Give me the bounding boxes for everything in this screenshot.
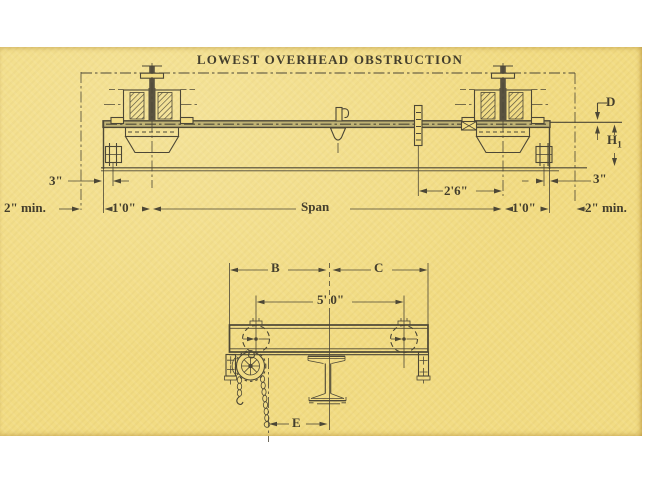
dim-label-2ft6: 2'6" bbox=[444, 184, 468, 198]
dim-label-1ft0-right: 1'0" bbox=[512, 201, 536, 215]
dim-label-2in-min-right: 2" min. bbox=[585, 201, 627, 215]
dim-label-3in-left: 3" bbox=[49, 174, 63, 188]
end-view-beam bbox=[230, 263, 429, 430]
dim-label-h1: H1 bbox=[607, 133, 622, 153]
turnbuckle bbox=[462, 122, 477, 131]
runway-ibeam-section bbox=[308, 356, 346, 404]
dim-label-1ft0-left: 1'0" bbox=[112, 201, 136, 215]
scanned-page: { "title": "LOWEST OVERHEAD OBSTRUCTION"… bbox=[0, 0, 650, 490]
dim-label-c: C bbox=[374, 261, 383, 275]
hook-fitting bbox=[331, 108, 349, 154]
dim-label-2in-min-left: 2" min. bbox=[4, 201, 46, 215]
splice-plate bbox=[415, 106, 423, 197]
dim-label-3in-right: 3" bbox=[593, 172, 607, 186]
figure-title: LOWEST OVERHEAD OBSTRUCTION bbox=[197, 53, 463, 67]
hand-chain bbox=[237, 358, 270, 442]
trolley-wheel-left bbox=[243, 296, 271, 353]
crane-diagram-linework bbox=[0, 0, 650, 490]
end-stop-right bbox=[417, 352, 430, 384]
dim-label-e: E bbox=[292, 416, 301, 430]
dim-label-h1-base: H bbox=[607, 132, 617, 147]
dim-label-h1-subscript: 1 bbox=[617, 141, 622, 151]
trolley-wheel-right bbox=[391, 296, 418, 369]
dim-label-span: Span bbox=[301, 200, 329, 214]
dim-label-d: D bbox=[606, 95, 615, 109]
dim-label-b: B bbox=[271, 261, 280, 275]
dim-label-5ft0: 5' 0" bbox=[317, 293, 344, 307]
